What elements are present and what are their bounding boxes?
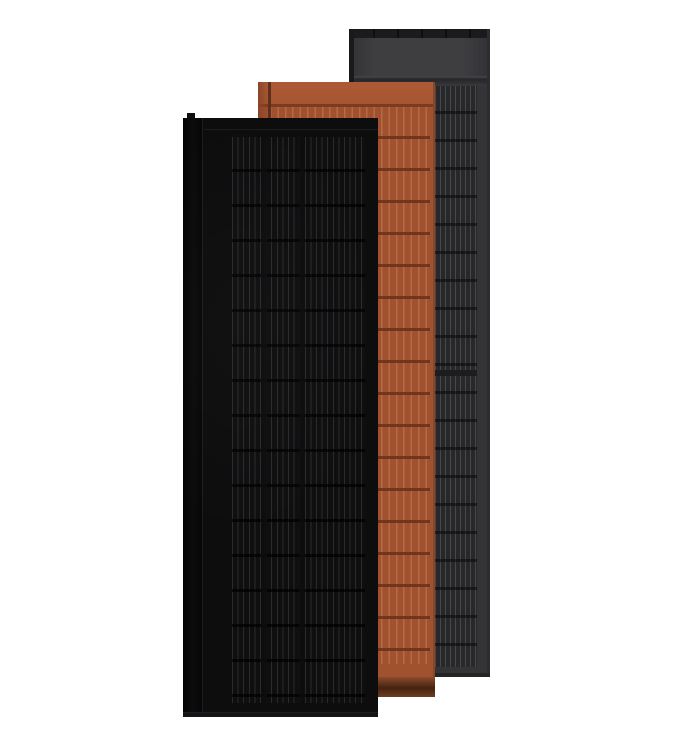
panel-black-bottom-edge	[183, 712, 378, 717]
panel-terracotta-right-edge	[433, 82, 435, 697]
panel-terracotta-header-line	[258, 104, 435, 107]
panel-black-column-gap-1	[261, 137, 267, 703]
panel-slate-header	[351, 38, 487, 76]
panel-black-left-frame	[183, 118, 203, 717]
panel-black-top-edge-line	[204, 129, 378, 130]
panel-black-cells	[232, 137, 365, 703]
panel-slate-top-frame	[349, 29, 490, 38]
panel-slate-right-edge	[487, 29, 490, 677]
panel-terracotta-header	[258, 82, 435, 104]
panel-black-column-gap-2	[299, 137, 305, 703]
panel-black	[183, 118, 378, 717]
product-render-scene	[0, 0, 684, 748]
